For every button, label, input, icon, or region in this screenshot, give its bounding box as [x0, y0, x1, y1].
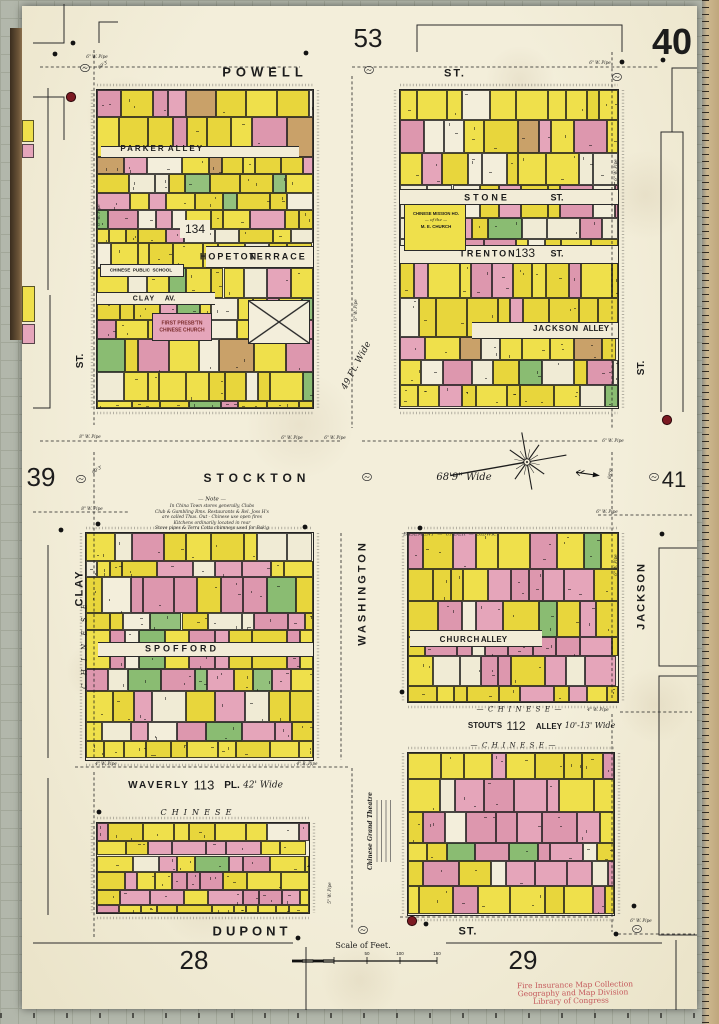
alley-clay-av-2: AV.: [165, 296, 176, 303]
hydrant-dot: [614, 932, 619, 937]
street-stockton: STOCKTON: [204, 472, 311, 484]
alley-parker-2: ALLEY: [168, 145, 204, 153]
note-line-1: In China Town stores generally, Clubs: [170, 505, 254, 509]
waverly-width: 42' Wide: [243, 782, 283, 791]
hydrant-dot: [418, 526, 423, 531]
street-trenton-st: ST.: [550, 250, 563, 259]
block-number-113: 113: [194, 779, 215, 792]
hydrant-dot: [620, 60, 625, 65]
cistern-marker: [66, 92, 75, 101]
pipe-label: 6" W. Pipe: [602, 439, 623, 443]
street-clay-st: ST.: [76, 354, 86, 368]
block-outline-bracket: [33, 295, 50, 408]
alley-hopeton-2: TERRACE: [249, 253, 307, 262]
adjacent-sheet-41: 41: [662, 469, 686, 491]
map-scan-stage: 534039412829POWELLST.STOCKTON68'9" WideD…: [0, 0, 719, 1024]
street-stone: STONE: [464, 194, 510, 203]
pipe-label: 4" B. Pipe: [297, 762, 318, 766]
alley-parker: PARKER: [120, 145, 165, 153]
pipe-label: 6" W. Pipe: [614, 554, 618, 575]
cistern-marker: [407, 916, 416, 925]
pipe-label: 4" W. Pipe: [95, 762, 116, 766]
street-powell-st: ST.: [444, 69, 466, 80]
presbyterian-church-1: FIRST PRESB'TN: [162, 322, 203, 327]
pipe-label: 6" W. Pipe: [596, 510, 617, 514]
hydrant-dot: [632, 904, 637, 909]
alley-jackson: JACKSON: [533, 325, 579, 333]
pipe-label: 6" W. Pipe: [281, 436, 302, 440]
alley-spofford: SPOFFORD: [145, 645, 219, 654]
street-jackson: JACKSON: [637, 562, 648, 630]
stockton-width: 68'9" Wide: [436, 473, 491, 483]
chinese-label-2: — C H I N E S E —: [471, 743, 556, 750]
block-outline-bracket: [659, 676, 697, 935]
chinese-label-4: C H I N E S E: [82, 601, 89, 689]
note-line-5: Stove pipes & Terra Cotta chimneys used …: [155, 527, 269, 531]
street-dupont: DUPONT: [213, 925, 292, 938]
street-stone-st: ST.: [550, 194, 563, 203]
me-church-3: M. E. CHURCH: [421, 225, 452, 229]
pipe-label: 5" W. Pipe: [328, 882, 332, 903]
hydrant-dot: [303, 525, 308, 530]
street-jackson-st: ST.: [637, 361, 647, 375]
pipe-label: 8" W. Pipe: [81, 507, 102, 511]
alley-stouts: STOUT'S: [468, 722, 502, 730]
block-number-133: 133: [515, 247, 535, 259]
alley-clay-av: CLAY: [133, 296, 155, 303]
scale-bar-segment: [292, 960, 303, 963]
block-outline-bracket: [33, 4, 64, 43]
pipe-label: 6" W. Pipe: [630, 919, 651, 923]
block-number-134: 134: [185, 223, 205, 235]
chinese-public-school: CHINESE PUBLIC SCHOOL: [110, 269, 172, 274]
basement-note: BASEMENT — UNDER — SIDWK.: [403, 533, 496, 538]
hydrant-dot: [97, 810, 102, 815]
block-outline-bracket: [672, 68, 697, 132]
street-waverly: WAVERLY: [128, 781, 190, 791]
adjacent-sheet-39: 39: [27, 464, 56, 490]
scale-title: Scale of Feet.: [335, 942, 390, 950]
adjacent-sheet-28: 28: [180, 947, 209, 973]
compass-rose: [445, 426, 571, 504]
street-washington: WASHINGTON: [358, 540, 369, 646]
direction-arrow: [576, 469, 601, 478]
note-line-3: are called Thus. Out - Chinese use open …: [162, 516, 262, 520]
pipe-label: 6" W. Pipe: [614, 159, 618, 180]
street-powell: POWELL: [222, 66, 308, 79]
scale-150: 150: [433, 952, 441, 957]
block-outline-bracket: [99, 22, 118, 43]
scale-50: 50: [364, 952, 369, 957]
note-title: — Note —: [198, 497, 226, 503]
alley-church-2: ALLEY: [481, 636, 507, 644]
hydrant-dot: [304, 51, 309, 56]
street-dupont-st: ST.: [459, 927, 478, 938]
ruler-ticks: [702, 0, 709, 1024]
alley-stouts-2: ALLEY: [536, 723, 562, 731]
me-church-2: — of the —: [425, 218, 447, 222]
pipe-label: 6" W. Pipe: [589, 61, 610, 65]
stouts-width: 10'-13' Wide: [565, 722, 616, 730]
pipe-label: 8" W. Pipe: [79, 435, 100, 439]
block-outline-bracket: [659, 548, 697, 666]
alley-jackson-2: ALLEY: [583, 325, 609, 333]
scale-100: 100: [396, 952, 404, 957]
street-trenton: TRENTON: [459, 250, 516, 259]
chinese-grand-theatre: Chinese Grand Theatre: [368, 792, 374, 870]
block-outline-bracket: [417, 25, 622, 52]
arrow-part: [593, 472, 601, 478]
hydrant-dot: [660, 532, 665, 537]
pipe-label: 6" W. Pipe: [97, 204, 101, 225]
pipe-label: 6" W. Pipe: [324, 436, 345, 440]
hydrant-dot: [53, 52, 58, 57]
sheet-number-40: 40: [652, 24, 692, 60]
presbyterian-church-2: CHINESE CHURCH: [159, 329, 204, 334]
hydrant-dot: [59, 528, 64, 533]
hydrant-dot: [400, 690, 405, 695]
alley-church: CHURCH: [440, 636, 481, 644]
pipe-label: 6" W. Pipe: [354, 299, 358, 320]
block-number-112: 112: [506, 720, 525, 732]
block-outline-bracket: [661, 132, 683, 412]
adjacent-sheet-29: 29: [509, 947, 538, 973]
hydrant-dot: [96, 522, 101, 527]
hydrant-dot: [424, 922, 429, 927]
hydrant-dot: [71, 41, 76, 46]
scale-bar-segment: [313, 960, 324, 963]
compass-center: [526, 461, 528, 463]
pipe-label: 6" W. Pipe: [86, 55, 107, 59]
adjacent-sheet-53: 53: [354, 25, 383, 51]
cistern-marker: [662, 415, 671, 424]
side-ruler: [702, 0, 719, 1024]
pipe-label: 4" W. Pipe: [587, 708, 608, 712]
stamp-line-3: Library of Congress: [533, 997, 609, 1006]
street-waverly-pl: PL.: [224, 781, 240, 791]
hydrant-dot: [296, 936, 301, 941]
me-church-1: CHINESE MISSION HO.: [413, 212, 459, 216]
chinese-label-1: — C H I N E S E —: [477, 707, 562, 714]
chinese-label-3: C H I N E S E: [161, 809, 232, 817]
